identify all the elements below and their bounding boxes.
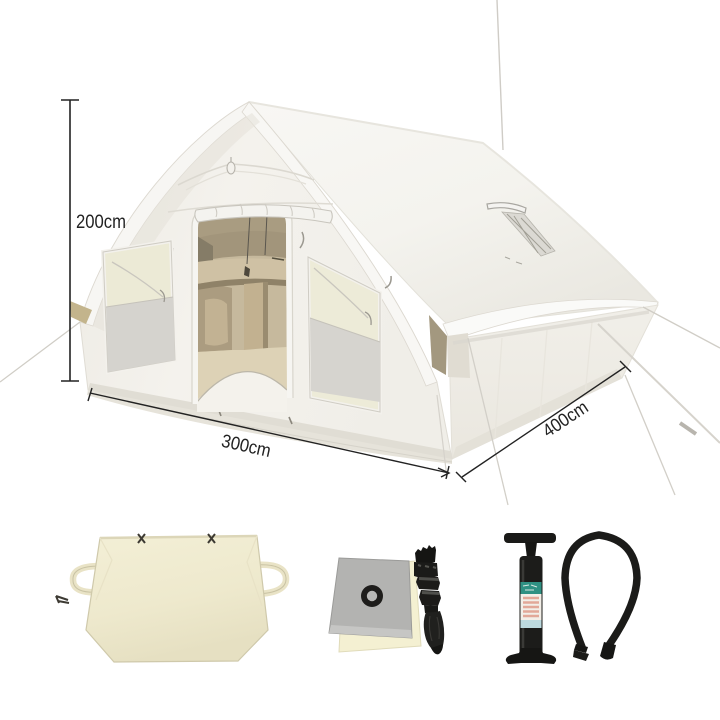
- svg-text:200cm: 200cm: [76, 211, 126, 233]
